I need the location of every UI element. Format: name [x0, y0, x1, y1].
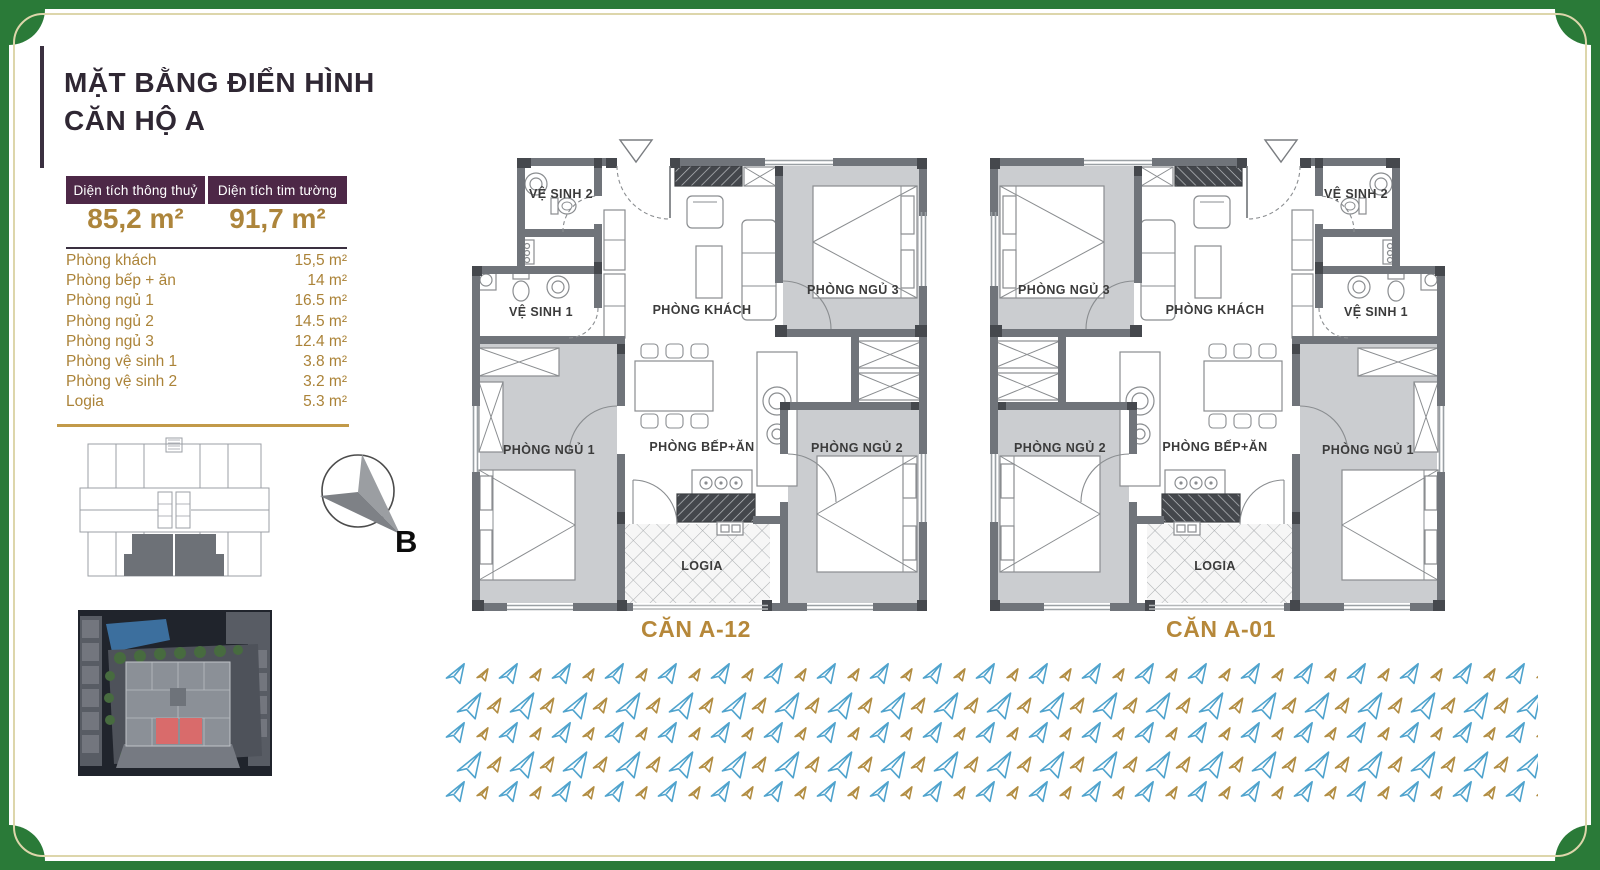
room-area-label: Phòng khách: [66, 251, 157, 271]
site-plan-image: [78, 606, 272, 780]
site-highlight-unit: [180, 718, 202, 744]
room-area-row: Phòng vệ sinh 23.2 m²: [66, 372, 347, 392]
frame-corner: [1555, 9, 1591, 45]
floor-plan-drawing: VỆ SINH 2VỆ SINH 1PHÒNG KHÁCHPHÒNG NGỦ 3…: [465, 138, 927, 613]
room-area-value: 14.5 m²: [294, 312, 347, 332]
room-area-value: 14 m²: [307, 271, 347, 291]
room-label: PHÒNG KHÁCH: [653, 302, 752, 317]
room-area-list: Phòng khách15,5 m²Phòng bếp + ăn14 m²Phò…: [66, 251, 347, 413]
room-area-row: Logia5.3 m²: [66, 392, 347, 412]
room-area-label: Phòng vệ sinh 1: [66, 352, 177, 372]
area-header-gross: Diện tích tim tường: [208, 176, 347, 204]
area-header-net: Diện tích thông thuỷ: [66, 176, 205, 204]
page-title: MẶT BẰNG ĐIỂN HÌNH CĂN HỘ A: [64, 64, 375, 140]
plan-caption-a01: CĂN A-01: [990, 616, 1452, 643]
room-area-label: Phòng ngủ 3: [66, 332, 154, 352]
brochure-page: MẶT BẰNG ĐIỂN HÌNH CĂN HỘ A Diện tích th…: [0, 0, 1600, 870]
floor-plan-geometry: [990, 140, 1445, 611]
room-label: LOGIA: [681, 559, 723, 573]
room-area-row: Phòng ngủ 312.4 m²: [66, 332, 347, 352]
room-area-label: Phòng bếp + ăn: [66, 271, 176, 291]
page-title-line2: CĂN HỘ A: [64, 102, 375, 140]
divider: [66, 247, 347, 249]
frame-corner: [1555, 825, 1591, 861]
room-area-label: Logia: [66, 392, 104, 412]
watermark-pattern: [438, 656, 1538, 814]
plan-caption-a12: CĂN A-12: [465, 616, 927, 643]
room-label: PHÒNG NGỦ 3: [1018, 282, 1110, 297]
room-area-value: 3.2 m²: [303, 372, 347, 392]
room-label: PHÒNG NGỦ 1: [1322, 442, 1414, 457]
room-area-row: Phòng khách15,5 m²: [66, 251, 347, 271]
site-highlight-unit: [156, 718, 178, 744]
area-value-gross: 91,7 m²: [208, 203, 347, 235]
room-area-row: Phòng vệ sinh 13.8 m²: [66, 352, 347, 372]
frame-corner: [9, 825, 45, 861]
floor-plan-geometry: [472, 140, 927, 611]
room-area-label: Phòng ngủ 1: [66, 291, 154, 311]
room-area-row: Phòng ngủ 214.5 m²: [66, 312, 347, 332]
floor-plan-a01: VỆ SINH 2VỆ SINH 1PHÒNG KHÁCHPHÒNG NGỦ 3…: [990, 138, 1452, 613]
room-area-label: Phòng vệ sinh 2: [66, 372, 177, 392]
floor-plan-drawing: VỆ SINH 2VỆ SINH 1PHÒNG KHÁCHPHÒNG NGỦ 3…: [990, 138, 1452, 613]
compass: B: [312, 444, 417, 556]
room-label: PHÒNG NGỦ 3: [807, 282, 899, 297]
key-plan-diagram: [72, 436, 277, 591]
divider-gold: [57, 424, 349, 427]
title-accent-bar: [40, 46, 44, 168]
compass-label: B: [395, 524, 417, 556]
room-label: PHÒNG BẾP+ĂN: [1162, 439, 1267, 454]
room-label: PHÒNG NGỦ 2: [811, 440, 903, 455]
room-area-value: 12.4 m²: [294, 332, 347, 352]
key-plan-highlighted-units: [124, 534, 224, 576]
room-label: VỆ SINH 1: [1344, 304, 1408, 319]
room-area-value: 5.3 m²: [303, 392, 347, 412]
room-area-value: 15,5 m²: [294, 251, 347, 271]
room-area-value: 3.8 m²: [303, 352, 347, 372]
room-label: VỆ SINH 2: [1324, 186, 1388, 201]
room-label: VỆ SINH 1: [509, 304, 573, 319]
room-label: VỆ SINH 2: [529, 186, 593, 201]
room-label: PHÒNG KHÁCH: [1166, 302, 1265, 317]
room-area-value: 16.5 m²: [294, 291, 347, 311]
room-area-row: Phòng ngủ 116.5 m²: [66, 291, 347, 311]
room-area-label: Phòng ngủ 2: [66, 312, 154, 332]
room-label: PHÒNG BẾP+ĂN: [649, 439, 754, 454]
page-title-line1: MẶT BẰNG ĐIỂN HÌNH: [64, 64, 375, 102]
floor-plan-a12: VỆ SINH 2VỆ SINH 1PHÒNG KHÁCHPHÒNG NGỦ 3…: [465, 138, 927, 613]
area-value-net: 85,2 m²: [66, 203, 205, 235]
room-area-row: Phòng bếp + ăn14 m²: [66, 271, 347, 291]
room-label: LOGIA: [1194, 559, 1236, 573]
room-label: PHÒNG NGỦ 2: [1014, 440, 1106, 455]
frame-corner: [9, 9, 45, 45]
room-label: PHÒNG NGỦ 1: [503, 442, 595, 457]
